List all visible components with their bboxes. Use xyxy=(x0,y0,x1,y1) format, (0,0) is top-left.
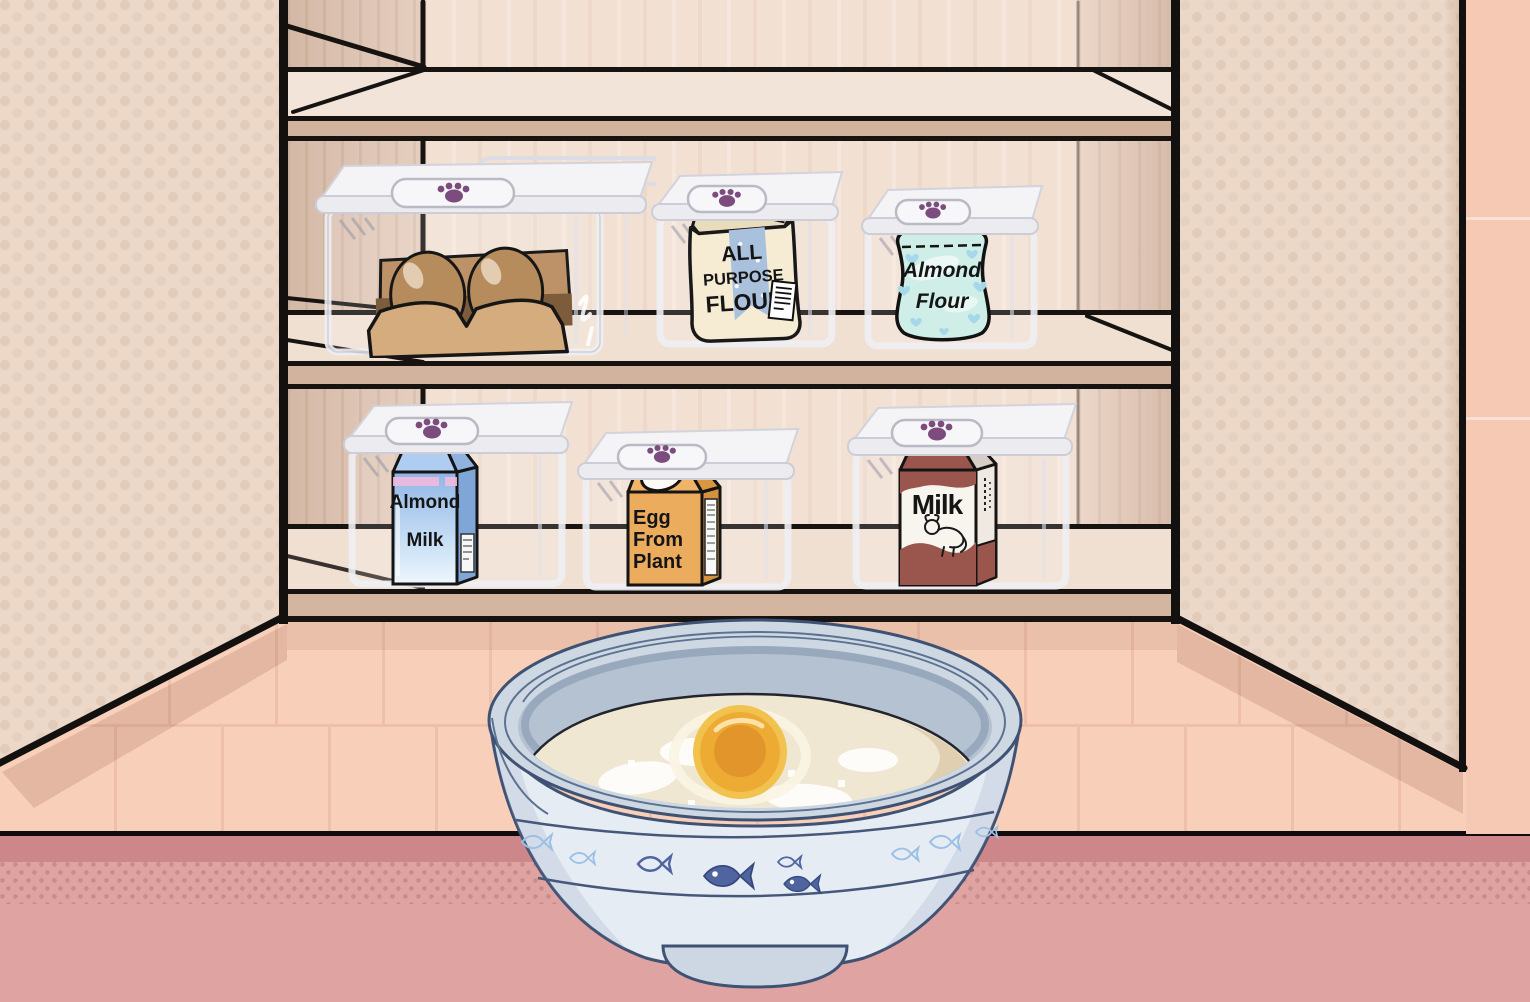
almond-flour-bag: Almond Flour xyxy=(897,231,989,340)
kitchen-scene: ALL PURPOSE FLOUR xyxy=(0,0,1530,1002)
mixing-bowl[interactable] xyxy=(478,610,1028,1002)
container-lid xyxy=(316,158,656,213)
container-egg-from-plant[interactable]: Egg From Plant xyxy=(570,423,802,595)
container-lid xyxy=(344,402,572,453)
almond-flour-label-line1: Almond xyxy=(902,259,982,282)
egg-plant-label-line3: Plant xyxy=(633,551,682,573)
container-lid xyxy=(848,404,1076,455)
egg-plant-label-line2: From xyxy=(633,529,683,551)
flour-label-line1: ALL xyxy=(721,241,763,267)
container-eggs[interactable] xyxy=(308,156,656,358)
almond-milk-label-line2: Milk xyxy=(407,530,444,551)
container-all-purpose-flour[interactable]: ALL PURPOSE FLOUR xyxy=(646,166,846,352)
side-wall-tiles xyxy=(1466,0,1530,834)
egg-plant-label-line1: Egg xyxy=(633,507,671,529)
almond-milk-label-line1: Almond xyxy=(390,492,461,513)
nutrition-label xyxy=(705,499,717,575)
container-lid xyxy=(652,172,842,220)
barcode-icon xyxy=(769,281,797,320)
container-lid xyxy=(578,429,798,479)
container-almond-flour[interactable]: Almond Flour xyxy=(856,180,1046,352)
almond-flour-label-line2: Flour xyxy=(916,290,970,313)
container-almond-milk[interactable]: Almond Milk xyxy=(336,396,576,592)
egg-yolk xyxy=(674,705,806,800)
bowl-foot xyxy=(663,946,847,987)
container-milk[interactable]: Milk xyxy=(840,398,1080,594)
egg-carton-icon xyxy=(367,246,574,357)
nutrition-label xyxy=(461,534,474,572)
container-lid xyxy=(862,186,1042,234)
